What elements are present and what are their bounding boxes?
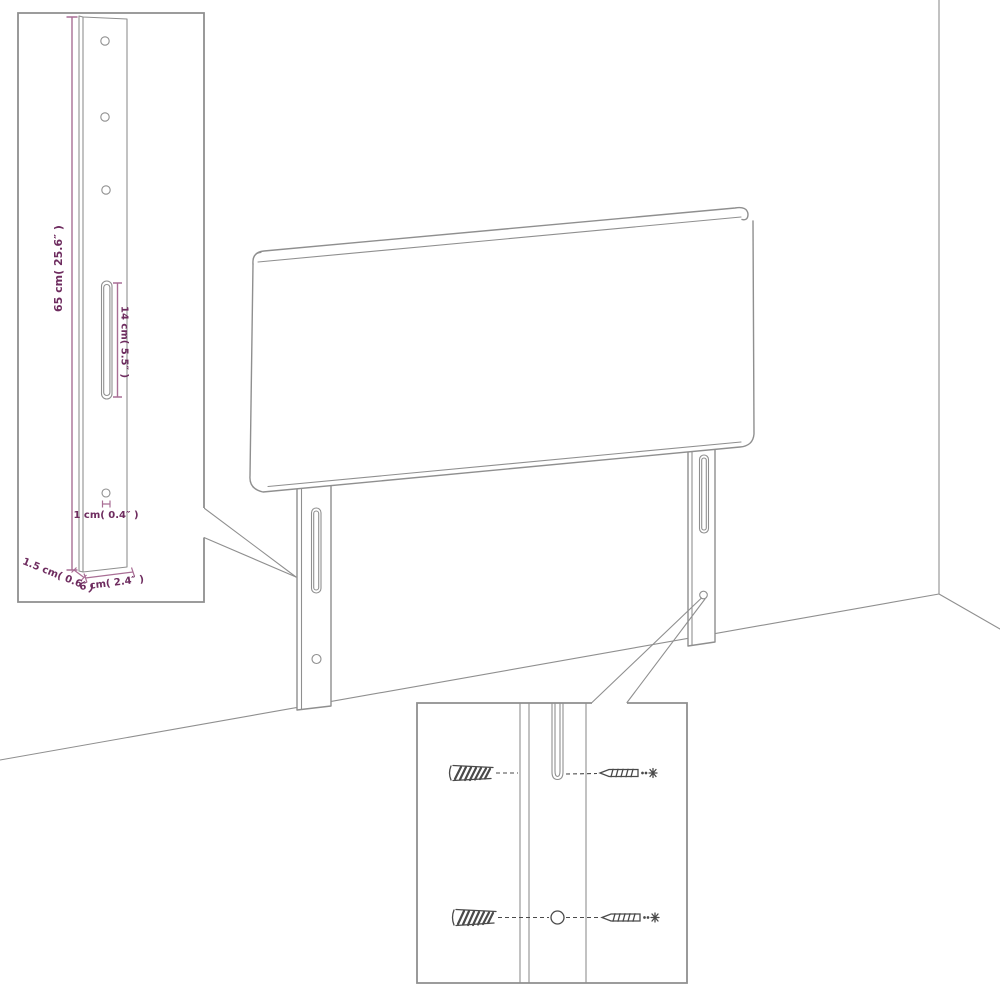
dimension-height-label: 65 cm( 25.6″ ) [52,225,65,312]
screw-head [649,769,657,778]
inset-callout-line-2 [204,538,296,578]
dimension-slot-label: 14 cm( 5.5″ ) [119,306,130,378]
leg-dimension-inset: 65 cm( 25.6″ ) 14 cm( 5.5″ ) 1 cm( 0.4″ … [18,13,204,602]
screw-head [651,913,659,922]
dimension-hole-label: 1 cm( 0.4″ ) [73,510,138,521]
detail-callout-line-1 [592,598,702,703]
floor-line-right [939,594,1000,629]
diagram-canvas: 65 cm( 25.6″ ) 14 cm( 5.5″ ) 1 cm( 0.4″ … [0,0,1000,1000]
callout-lines [204,508,705,703]
product-dimension-diagram: 65 cm( 25.6″ ) 14 cm( 5.5″ ) 1 cm( 0.4″ … [0,0,1000,1000]
mounting-detail-inset [417,703,687,983]
detail-callout-line-2 [627,599,705,703]
headboard-panel [250,208,754,492]
inset-callout-line-1 [204,508,296,577]
